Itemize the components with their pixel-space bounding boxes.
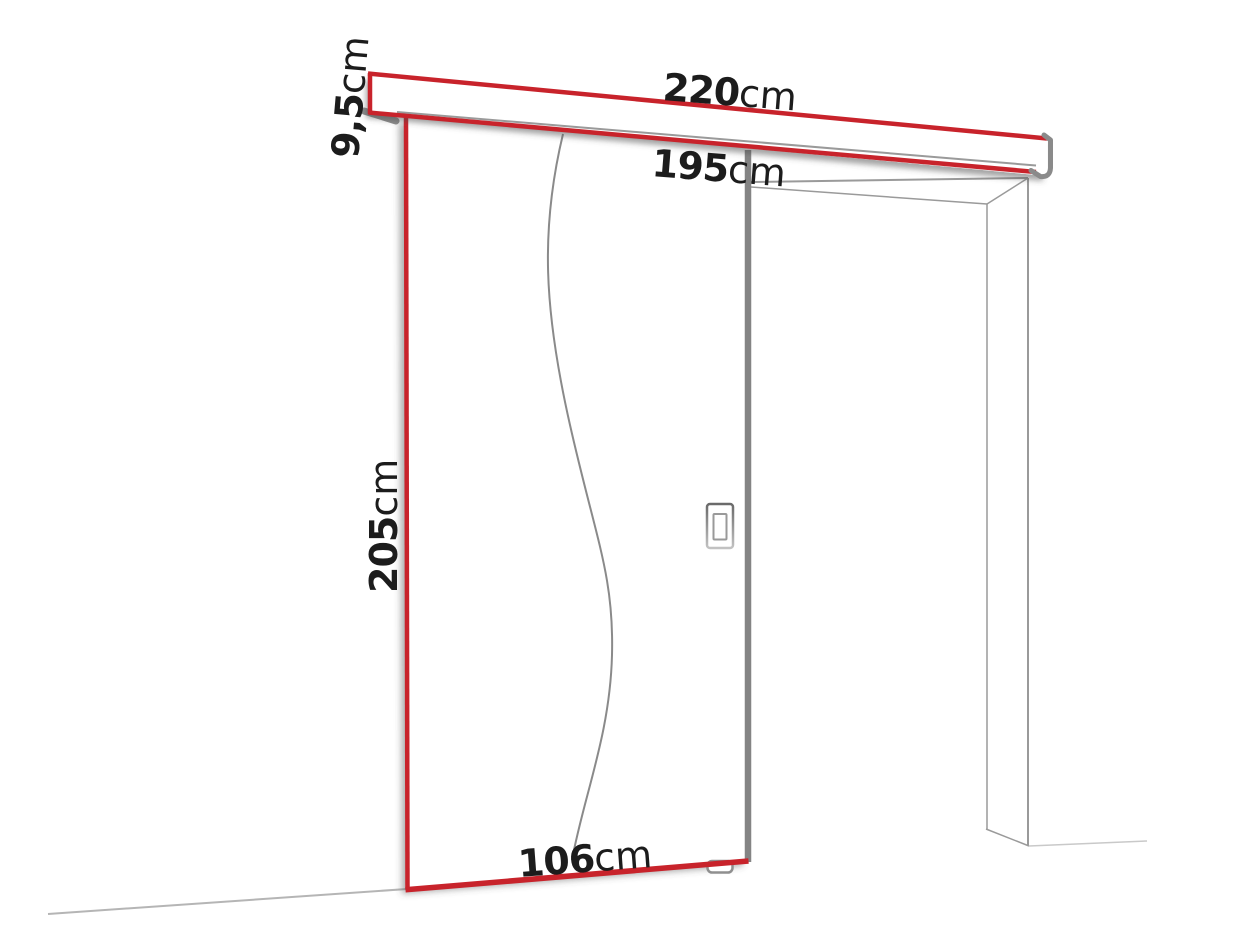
diagram-canvas: 220cm 195cm 9,5cm 205cm 106cm: [0, 0, 1247, 935]
door-panel: [404, 117, 749, 890]
floor-line-right: [1029, 841, 1147, 846]
floor-line-left: [48, 889, 407, 914]
door-left-edge: [406, 117, 408, 890]
door-width-label: 106cm: [516, 832, 653, 886]
door-dimension-diagram: 220cm 195cm 9,5cm 205cm 106cm: [0, 0, 1247, 935]
door-frame-opening: [751, 178, 1147, 846]
door-handle: [707, 504, 733, 548]
door-panel-surface: [404, 119, 748, 890]
rail-height-label: 9,5cm: [323, 34, 377, 160]
door-height-label: 205cm: [362, 459, 406, 593]
